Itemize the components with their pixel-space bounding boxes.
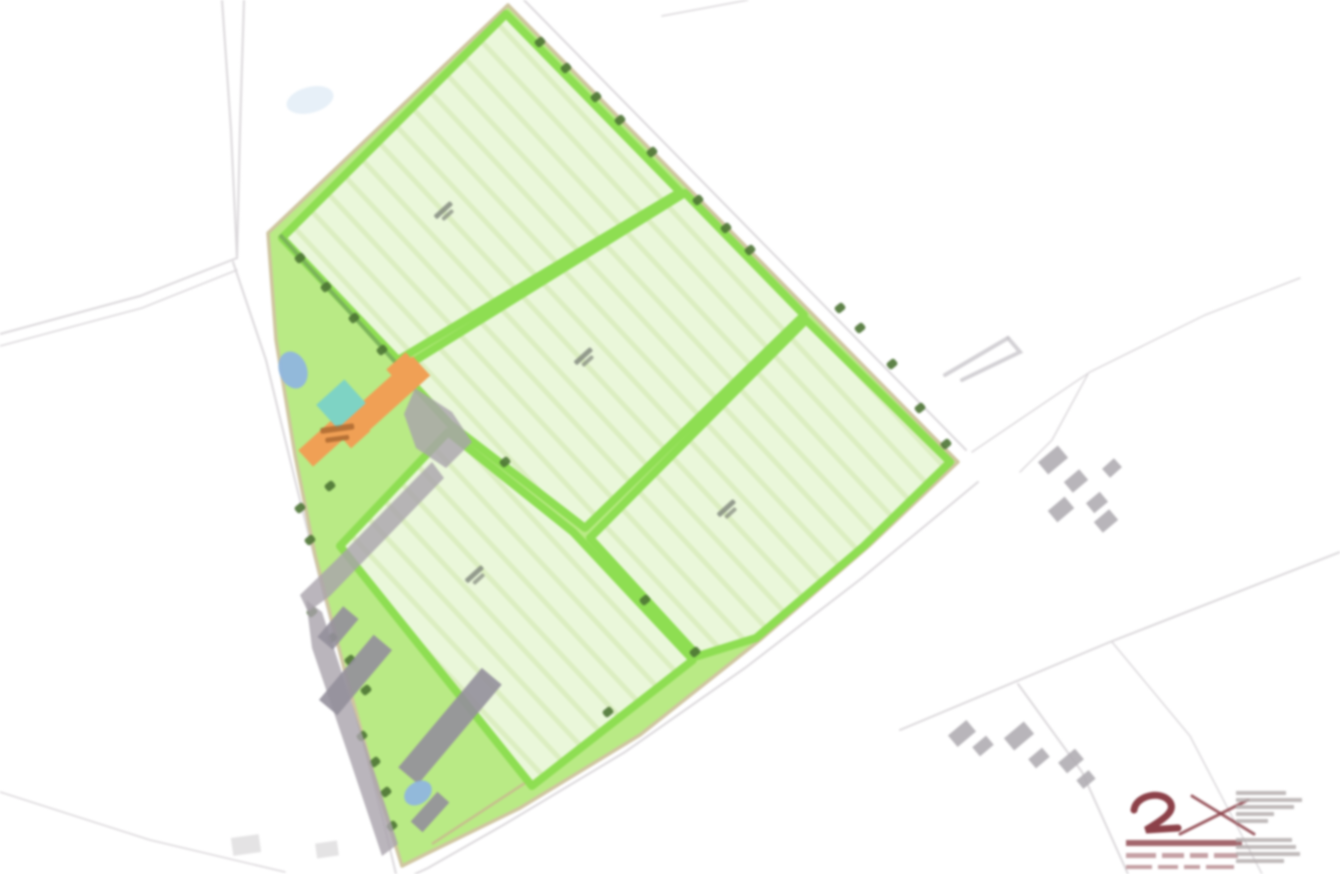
logo-text-mark [1126, 853, 1156, 858]
road-line [237, 0, 244, 258]
road-line [0, 792, 285, 872]
house-building [1076, 770, 1095, 789]
logo-text-mark [1162, 853, 1184, 858]
house-building [1094, 509, 1118, 533]
house-building [1064, 469, 1088, 493]
logo-address-mark [1236, 812, 1274, 816]
logo-text-mark [1190, 853, 1208, 858]
site-plan-drawing [0, 0, 1340, 874]
logo-text-mark [1206, 865, 1234, 869]
house-building [1028, 748, 1050, 769]
logo-text-mark [1126, 865, 1152, 869]
tree-icon [834, 302, 847, 315]
house-building [1102, 458, 1122, 478]
road-line [222, 0, 237, 258]
logo-address-mark [1236, 819, 1268, 823]
marker-line [945, 338, 1008, 375]
logo-address-mark [1236, 852, 1300, 856]
road-line [972, 278, 1300, 452]
house-building [972, 736, 994, 757]
site-plan-map [0, 0, 1340, 874]
house-building [231, 834, 261, 856]
pond [283, 81, 336, 119]
road-line [0, 258, 237, 334]
logo-address-mark [1236, 838, 1292, 842]
house-building [1086, 492, 1108, 514]
tree-icon [854, 322, 867, 335]
road-line [662, 0, 748, 16]
house-building [1004, 722, 1034, 751]
logo-address-mark [1236, 798, 1302, 802]
road-line [900, 552, 1340, 730]
survey-marker [945, 338, 1020, 380]
house-building [1048, 497, 1074, 523]
logo-wordmark-bar [1126, 840, 1242, 846]
logo-text-mark [1158, 865, 1178, 869]
logo-text-mark [1214, 853, 1238, 858]
consultant-logo-block [1126, 791, 1302, 869]
logo-address-mark [1236, 805, 1294, 809]
house-building [315, 841, 339, 859]
house-building [948, 720, 976, 747]
road-line [0, 270, 237, 346]
logo-address-mark [1236, 791, 1286, 795]
tree-icon [914, 402, 927, 415]
logo-address-mark [1236, 859, 1284, 863]
logo-glyph [1134, 795, 1178, 830]
logo-text-mark [1184, 865, 1200, 869]
tree-icon [886, 358, 899, 371]
road-line [1018, 684, 1128, 874]
logo-address-mark [1236, 845, 1296, 849]
